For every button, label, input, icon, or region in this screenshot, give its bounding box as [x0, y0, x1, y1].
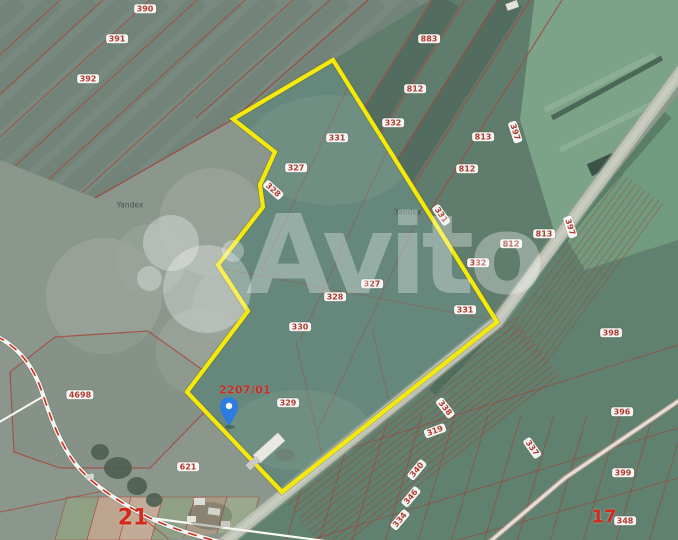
highlighted-parcel-number: 2207/01	[219, 384, 271, 397]
yandex-watermark: Yandex	[395, 208, 422, 217]
zone-number-label: 21	[118, 506, 149, 531]
yandex-watermark: Yandex	[117, 201, 144, 210]
satellite-basemap	[0, 0, 678, 540]
map-screenshot: 3903913928838123323313273288133978123318…	[0, 0, 678, 540]
pin-center-dot	[226, 403, 232, 409]
zone-number-label: 17	[591, 507, 616, 528]
